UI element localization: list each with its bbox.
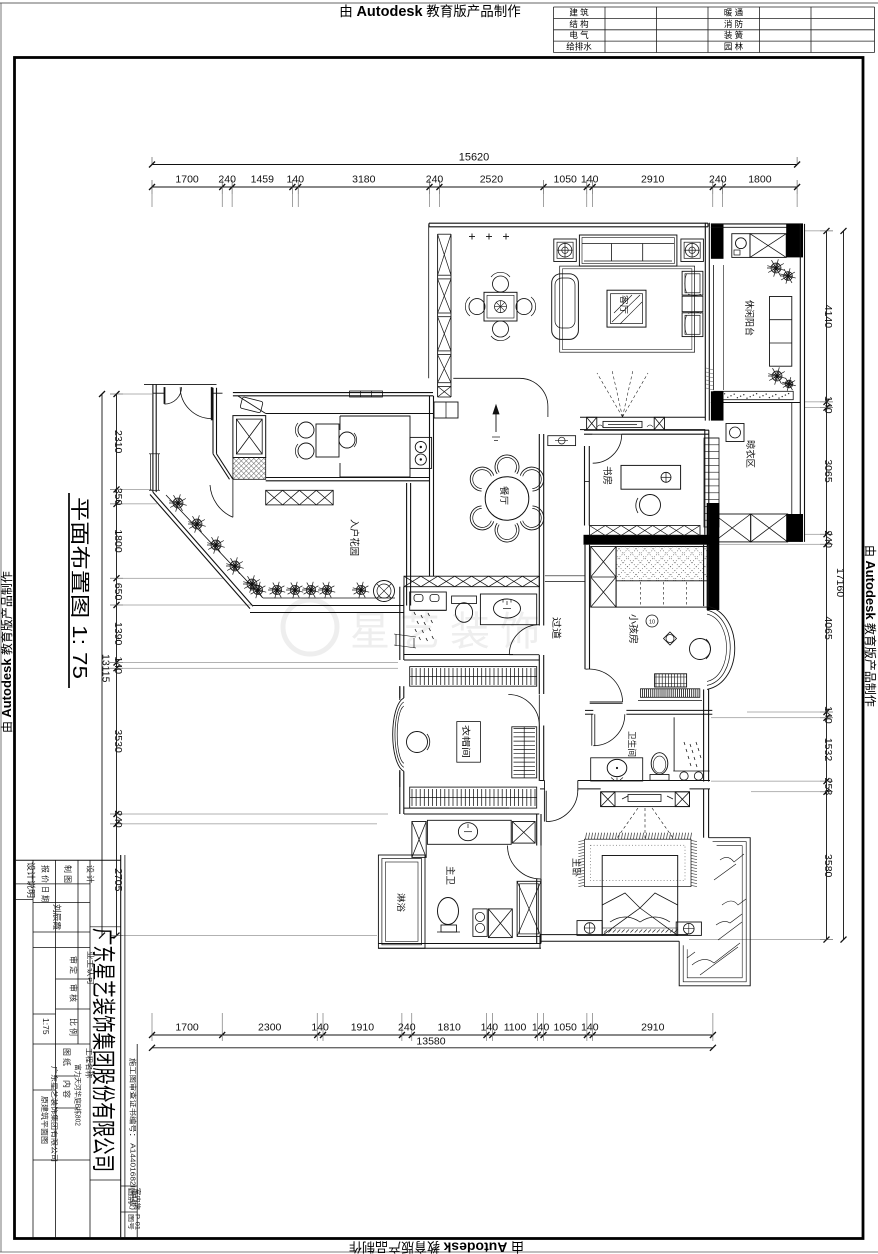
svg-text:4140: 4140 xyxy=(822,305,834,329)
svg-text:日 期: 日 期 xyxy=(41,886,50,902)
svg-text:设计说明: 设计说明 xyxy=(26,862,36,898)
svg-text:客厅: 客厅 xyxy=(619,295,629,315)
svg-text:13115: 13115 xyxy=(100,654,112,683)
svg-text:140: 140 xyxy=(481,1022,499,1034)
svg-text:入户花园: 入户花园 xyxy=(348,519,360,556)
svg-text:350: 350 xyxy=(112,488,124,506)
svg-text:140: 140 xyxy=(287,174,305,186)
svg-text:140: 140 xyxy=(311,1022,329,1034)
svg-text:140: 140 xyxy=(581,1022,599,1034)
svg-text:由 Autodesk 教育版产品制作: 由 Autodesk 教育版产品制作 xyxy=(863,545,878,707)
svg-text:140: 140 xyxy=(822,706,834,724)
svg-text:1050: 1050 xyxy=(554,174,578,186)
svg-text:由 Autodesk 教育版产品制作: 由 Autodesk 教育版产品制作 xyxy=(0,571,14,733)
svg-text:2910: 2910 xyxy=(641,1022,665,1034)
svg-text:240: 240 xyxy=(709,174,727,186)
svg-text:由 Autodesk 教育版产品制作: 由 Autodesk 教育版产品制作 xyxy=(349,1240,524,1254)
svg-text:1700: 1700 xyxy=(175,174,199,186)
svg-text:4065: 4065 xyxy=(822,616,834,640)
svg-text:2300: 2300 xyxy=(258,1022,282,1034)
svg-text:由 Autodesk 教育版产品制作: 由 Autodesk 教育版产品制作 xyxy=(339,4,521,20)
svg-text:3065: 3065 xyxy=(822,459,834,483)
svg-text:2520: 2520 xyxy=(480,174,504,186)
svg-text:原建筑平面图: 原建筑平面图 xyxy=(40,1096,50,1144)
svg-text:图 纸: 图 纸 xyxy=(62,1048,72,1066)
svg-text:广东星艺装饰集团股份有限公司: 广东星艺装饰集团股份有限公司 xyxy=(89,928,116,1172)
svg-text:1910: 1910 xyxy=(351,1022,375,1034)
svg-text:1800: 1800 xyxy=(112,529,124,553)
svg-text:餐厅: 餐厅 xyxy=(499,486,510,505)
svg-text:1100: 1100 xyxy=(504,1022,527,1034)
svg-text:淋浴: 淋浴 xyxy=(396,893,406,913)
svg-text:主卫: 主卫 xyxy=(444,866,456,885)
svg-text:审 核: 审 核 xyxy=(69,984,79,1002)
svg-text:15620: 15620 xyxy=(459,152,490,164)
svg-text:140: 140 xyxy=(581,174,599,186)
svg-text:制 图: 制 图 xyxy=(63,865,73,883)
svg-text:设 计: 设 计 xyxy=(86,865,96,883)
svg-text:258: 258 xyxy=(822,778,834,796)
svg-text:装 簧: 装 簧 xyxy=(724,30,744,40)
svg-text:审 定: 审 定 xyxy=(69,956,79,974)
svg-text:3180: 3180 xyxy=(352,174,376,186)
svg-text:240: 240 xyxy=(112,810,124,828)
svg-text:比 例: 比 例 xyxy=(69,1018,79,1036)
svg-text:休闲阳台: 休闲阳台 xyxy=(743,300,755,336)
svg-text:消 防: 消 防 xyxy=(724,19,744,29)
svg-text:书房: 书房 xyxy=(601,466,613,485)
svg-text:卫生间: 卫生间 xyxy=(627,731,637,757)
svg-text:240: 240 xyxy=(426,174,444,186)
svg-text:P-01: P-01 xyxy=(134,1214,141,1230)
svg-text:过道: 过道 xyxy=(550,617,562,640)
svg-text:140: 140 xyxy=(532,1022,550,1034)
svg-text:240: 240 xyxy=(218,174,236,186)
svg-text:1800: 1800 xyxy=(748,174,772,186)
svg-text:主卧: 主卧 xyxy=(570,858,582,877)
svg-text:1390: 1390 xyxy=(112,622,124,646)
svg-text:240: 240 xyxy=(822,530,834,548)
svg-text:平面布置图 1: 75: 平面布置图 1: 75 xyxy=(68,497,91,679)
svg-text:衣帽间: 衣帽间 xyxy=(461,725,471,758)
svg-text:报 价: 报 价 xyxy=(41,865,51,883)
svg-text:刘辰霞: 刘辰霞 xyxy=(52,904,62,930)
svg-text:2310: 2310 xyxy=(112,430,124,454)
svg-text:650: 650 xyxy=(112,583,124,601)
svg-text:暖 通: 暖 通 xyxy=(724,7,744,17)
svg-text:140: 140 xyxy=(112,657,124,675)
svg-text:2705: 2705 xyxy=(112,868,124,892)
svg-text:1532: 1532 xyxy=(822,738,834,762)
svg-text:3530: 3530 xyxy=(112,729,124,753)
svg-text:10: 10 xyxy=(649,620,655,626)
svg-text:1:75: 1:75 xyxy=(41,1018,51,1035)
svg-text:1700: 1700 xyxy=(175,1022,199,1034)
svg-text:广东星艺装饰集团有限公司: 广东星艺装饰集团有限公司 xyxy=(50,1066,59,1162)
svg-text:140: 140 xyxy=(822,396,834,414)
svg-text:240: 240 xyxy=(398,1022,416,1034)
svg-text:给排水: 给排水 xyxy=(566,42,592,52)
svg-text:室内施: 室内施 xyxy=(134,1188,143,1211)
svg-text:富力天河华庭B栋802: 富力天河华庭B栋802 xyxy=(74,1064,83,1126)
svg-text:内 容: 内 容 xyxy=(62,1080,72,1098)
svg-text:园 林: 园 林 xyxy=(724,42,744,52)
svg-text:13580: 13580 xyxy=(416,1036,445,1048)
svg-text:17160: 17160 xyxy=(834,568,846,597)
svg-text:1459: 1459 xyxy=(251,174,275,186)
svg-text:小孩房: 小孩房 xyxy=(627,614,639,644)
svg-text:结 构: 结 构 xyxy=(569,19,588,29)
svg-text:1810: 1810 xyxy=(438,1022,462,1034)
svg-text:晾衣区: 晾衣区 xyxy=(744,440,756,468)
svg-text:建 筑: 建 筑 xyxy=(569,7,589,17)
svg-text:3580: 3580 xyxy=(822,854,834,878)
svg-text:1050: 1050 xyxy=(554,1022,578,1034)
svg-text:电 气: 电 气 xyxy=(569,30,589,40)
svg-text:2910: 2910 xyxy=(641,174,665,186)
